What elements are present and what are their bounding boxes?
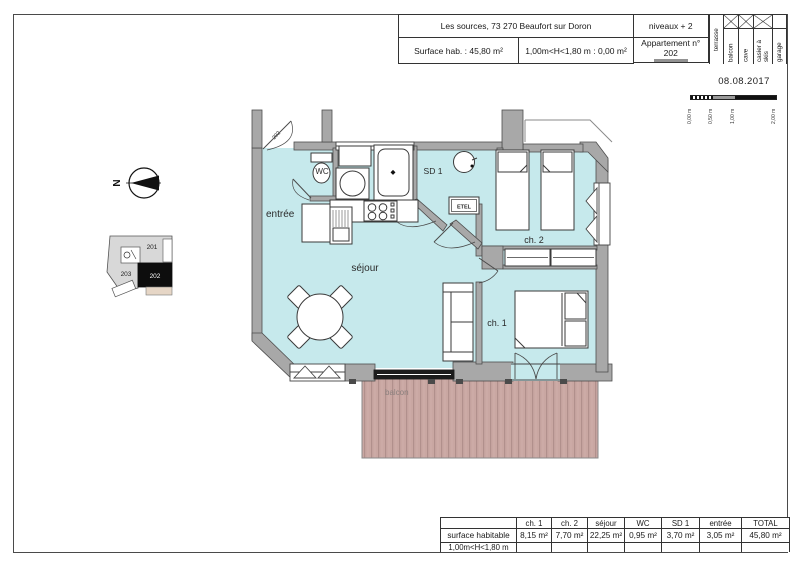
row-label: surface habitable (441, 529, 517, 543)
col-header: ch. 1 (517, 518, 552, 529)
north-label: N (112, 179, 123, 186)
col-header (441, 518, 517, 529)
bed-single-1 (496, 150, 529, 230)
area-value (625, 543, 662, 552)
kitchen-sink (336, 168, 369, 199)
col-header: TOTAL (742, 518, 789, 529)
label-sejour: séjour (351, 263, 379, 274)
area-value: 22,25 m² (588, 529, 625, 543)
label-sd1: SD 1 (424, 166, 443, 176)
tall-unit (330, 207, 352, 244)
key-unit-202: 202 (150, 273, 161, 280)
kitchen-cabinet (339, 146, 371, 166)
north-arrow: N (112, 168, 161, 198)
floor-plan-drawing: N 201 203 202 balcon (0, 0, 800, 565)
col-header: WC (625, 518, 662, 529)
area-summary-table: ch. 1 ch. 2 séjour WC SD 1 entrée TOTAL … (440, 517, 790, 552)
sofa (443, 283, 473, 361)
key-unit-203: 203 (121, 271, 132, 278)
area-value: 45,80 m² (742, 529, 789, 543)
bed-single-2 (541, 150, 574, 230)
area-value (588, 543, 625, 552)
key-plan-balcony-strip (163, 239, 172, 262)
entry-closet (302, 204, 330, 242)
dining-table (287, 285, 353, 349)
sejour-window (290, 364, 345, 381)
area-value (552, 543, 588, 552)
balcony: balcon (362, 378, 598, 458)
bathtub (374, 145, 413, 200)
key-plan-terrace (146, 287, 172, 295)
label-wc: WC (315, 167, 329, 176)
area-value: 3,05 m² (700, 529, 742, 543)
col-header: entrée (700, 518, 742, 529)
sejour-bay-door (374, 370, 454, 379)
col-header: ch. 2 (552, 518, 588, 529)
floor-plan-sheet: Les sources, 73 270 Beaufort sur Doron S… (0, 0, 800, 565)
area-value (517, 543, 552, 552)
key-unit-201: 201 (147, 244, 158, 251)
area-value: 3,70 m² (662, 529, 700, 543)
area-value: 0,95 m² (625, 529, 662, 543)
area-value (662, 543, 700, 552)
label-ch2: ch. 2 (524, 235, 544, 245)
label-entree: entrée (266, 209, 295, 220)
label-ch1: ch. 1 (487, 318, 507, 328)
col-header: séjour (588, 518, 625, 529)
area-value: 8,15 m² (517, 529, 552, 543)
area-value (700, 543, 742, 552)
bed-double (515, 291, 588, 348)
area-value (742, 543, 789, 552)
wardrobes (505, 249, 596, 266)
label-etel: ETEL (457, 205, 472, 211)
area-value: 7,70 m² (552, 529, 588, 543)
row-label: 1,00m<H<1,80 m (441, 543, 517, 552)
key-plan: 201 203 202 (107, 236, 172, 297)
col-header: SD 1 (662, 518, 700, 529)
neighbor-outline (525, 120, 612, 142)
balcony-label: balcon (385, 388, 409, 397)
